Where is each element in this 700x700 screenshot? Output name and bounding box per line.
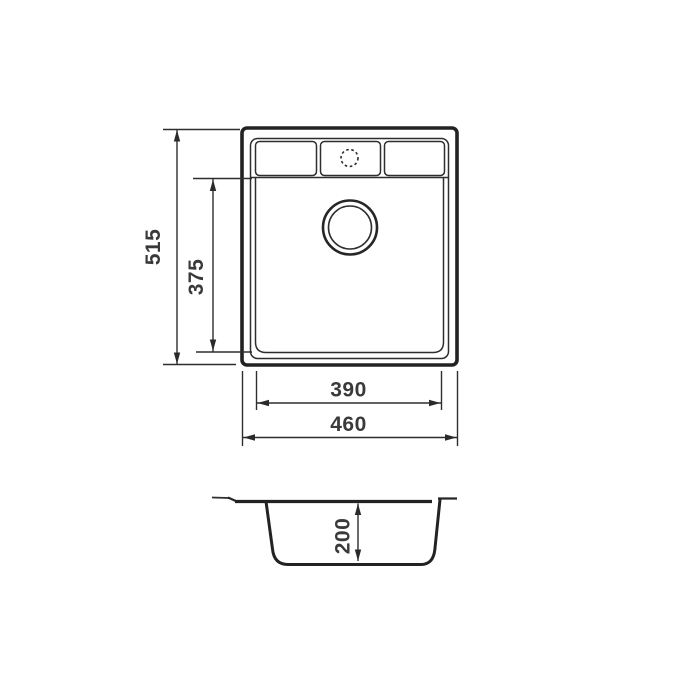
- arrowhead-right-icon: [445, 434, 457, 440]
- dimension-bowl-width: 390: [257, 371, 442, 410]
- sink-outer-edge: [242, 128, 457, 365]
- arrowhead-up-icon: [210, 180, 216, 192]
- arrowhead-up-icon: [355, 504, 361, 516]
- drawing-canvas: 515 375 390 460: [0, 0, 700, 700]
- dimension-bowl-depth: 200: [332, 504, 362, 562]
- tap-hole-icon: [341, 150, 358, 167]
- sink-dimension-drawing: 515 375 390 460: [0, 0, 700, 700]
- arrowhead-left-icon: [258, 400, 270, 406]
- dimension-label-390: 390: [330, 379, 367, 402]
- rim-lip-left: [212, 498, 229, 499]
- dimension-label-200: 200: [332, 518, 355, 555]
- arrowhead-down-icon: [210, 340, 216, 352]
- arrowhead-up-icon: [174, 130, 180, 142]
- ledge-panel-right: [385, 142, 445, 176]
- sink-top-view: [242, 128, 457, 365]
- arrowhead-down-icon: [355, 550, 361, 562]
- drain-outer-icon: [323, 201, 377, 255]
- arrowhead-left-icon: [244, 434, 256, 440]
- drain-inner-icon: [329, 206, 372, 249]
- arrowhead-down-icon: [174, 353, 180, 365]
- ledge-panel-center: [321, 142, 381, 176]
- bowl-inner-edge: [256, 178, 444, 353]
- dimension-label-515: 515: [142, 229, 165, 266]
- ledge-panel-left: [256, 142, 317, 176]
- dimension-label-375: 375: [185, 259, 208, 296]
- arrowhead-right-icon: [429, 400, 441, 406]
- dimension-overall-length: 515: [142, 130, 240, 365]
- dimension-label-460: 460: [330, 413, 367, 436]
